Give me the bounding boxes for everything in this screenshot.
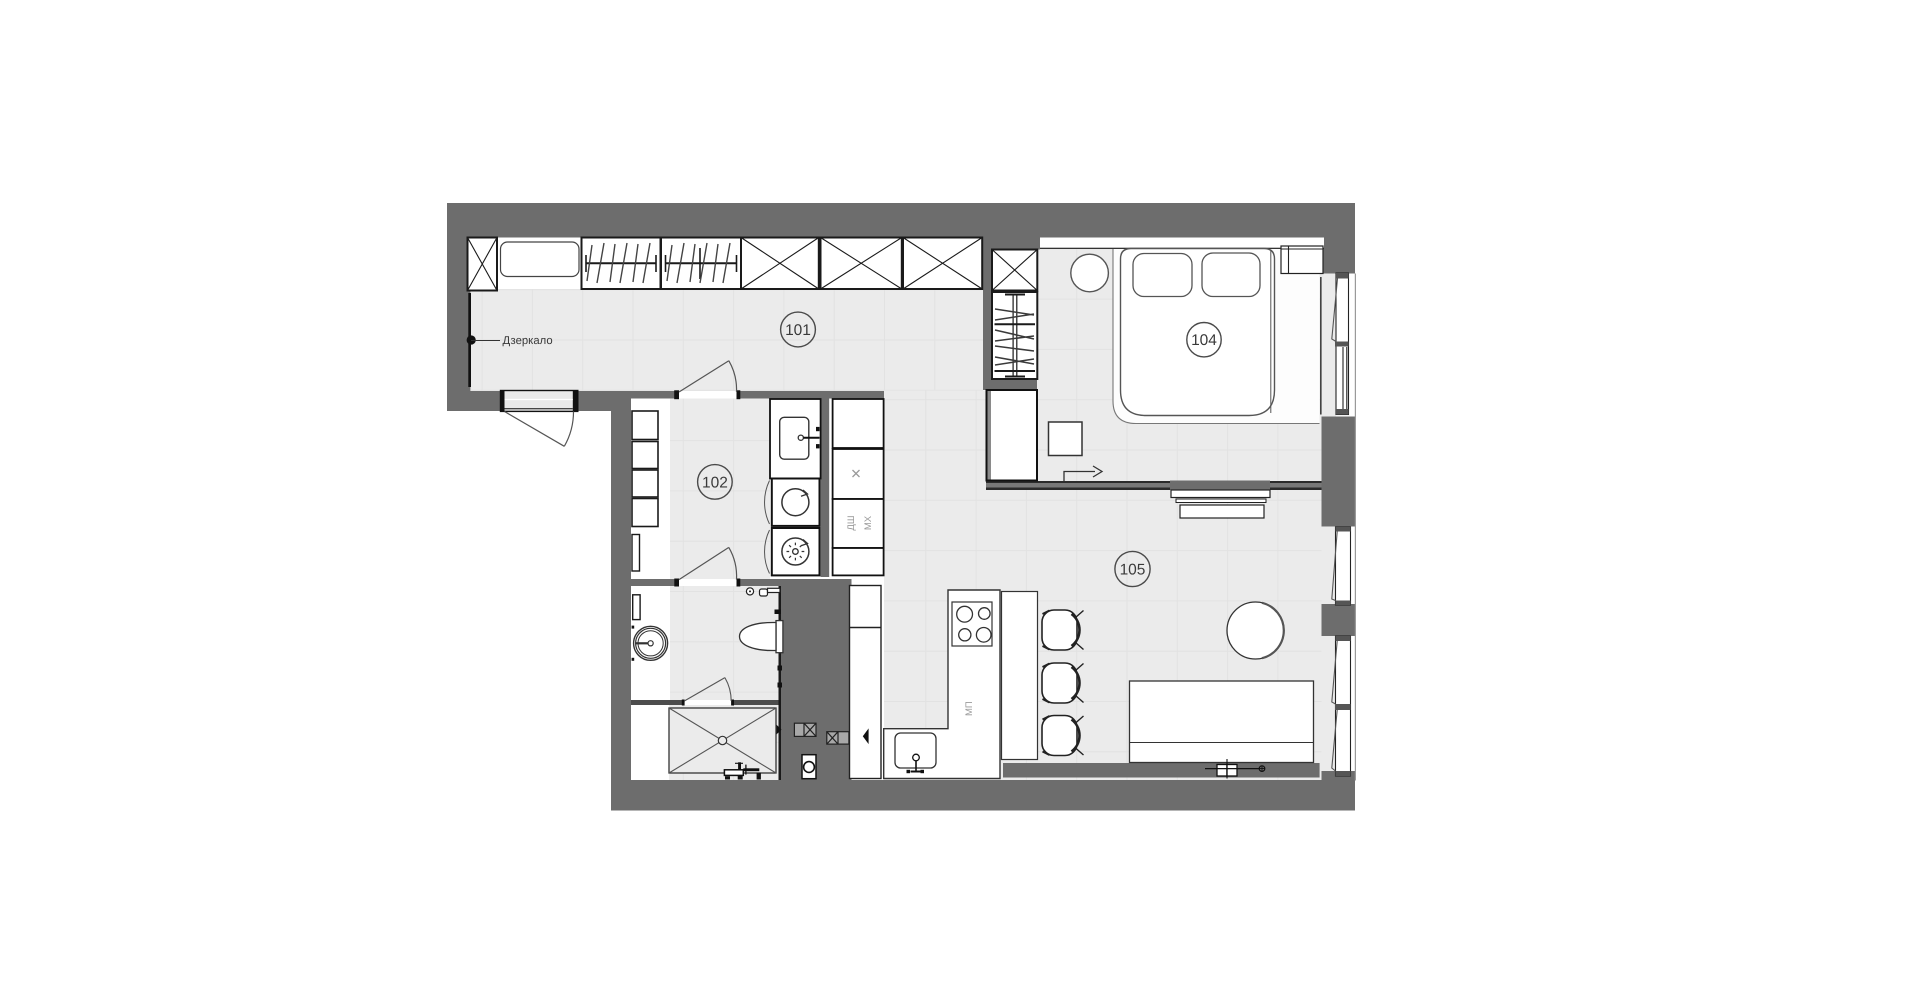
svg-text:104: 104: [1191, 332, 1217, 349]
svg-text:102: 102: [702, 474, 728, 491]
svg-text:105: 105: [1120, 562, 1146, 579]
svg-text:МП: МП: [964, 701, 975, 716]
svg-text:Дзеркало: Дзеркало: [503, 335, 553, 347]
svg-text:ДШ: ДШ: [846, 515, 857, 530]
svg-text:101: 101: [785, 322, 811, 339]
svg-text:МХ: МХ: [863, 515, 874, 530]
